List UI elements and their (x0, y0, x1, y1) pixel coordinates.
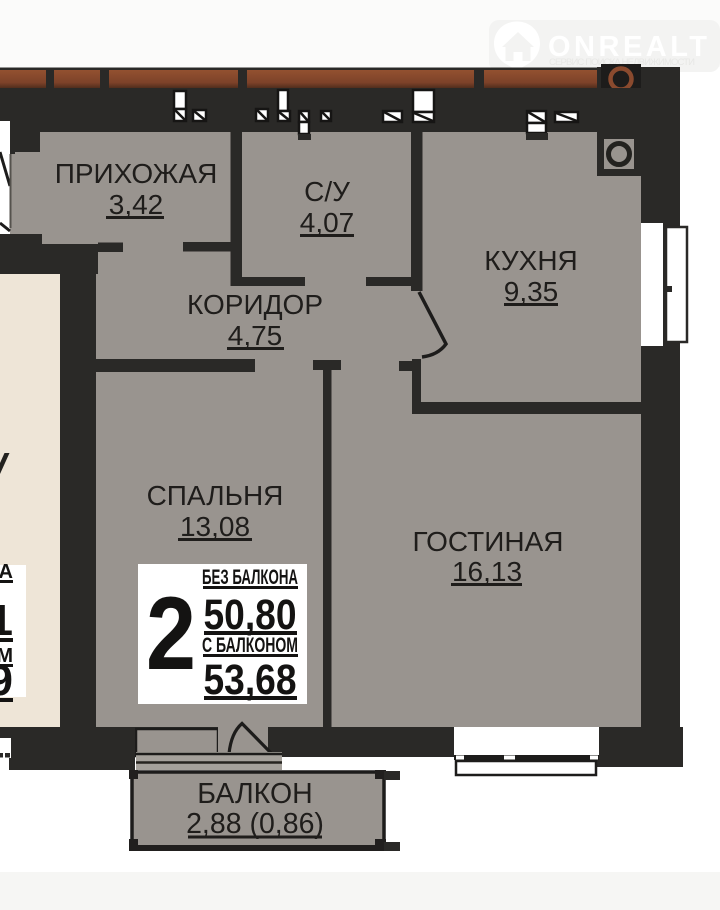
svg-text:НА: НА (0, 561, 13, 583)
svg-text:2,88 (0,86): 2,88 (0,86) (186, 808, 324, 840)
svg-text:С БАЛКОНОМ: С БАЛКОНОМ (202, 634, 298, 657)
svg-text:4,07: 4,07 (300, 207, 355, 238)
svg-text:4,75: 4,75 (228, 320, 283, 351)
svg-text:13,08: 13,08 (180, 511, 250, 542)
svg-text:2: 2 (146, 576, 196, 692)
svg-text:ПРИХОЖАЯ: ПРИХОЖАЯ (55, 158, 218, 189)
svg-text:КОРИДОР: КОРИДОР (187, 289, 323, 320)
svg-text:С/У: С/У (304, 176, 350, 207)
svg-text:9: 9 (0, 656, 13, 705)
svg-text:9,35: 9,35 (504, 276, 559, 307)
svg-text:КУХНЯ: КУХНЯ (484, 245, 578, 276)
svg-text:1: 1 (0, 596, 13, 645)
svg-text:16,13: 16,13 (452, 556, 522, 587)
svg-text:СПАЛЬНЯ: СПАЛЬНЯ (147, 480, 284, 511)
svg-text:БАЛКОН: БАЛКОН (197, 778, 312, 810)
svg-text:БЕЗ БАЛКОНА: БЕЗ БАЛКОНА (202, 566, 298, 589)
svg-text:ГОСТИНАЯ: ГОСТИНАЯ (412, 526, 563, 557)
svg-text:3,42: 3,42 (109, 189, 164, 220)
